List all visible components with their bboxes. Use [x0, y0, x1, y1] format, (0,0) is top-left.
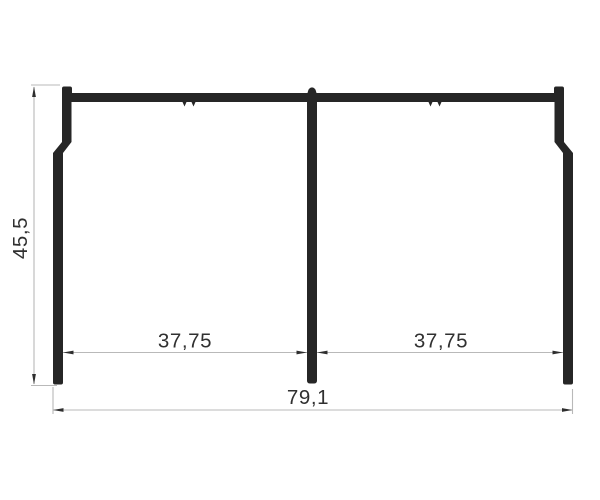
right-span-dimension-label: 37,75: [414, 330, 468, 353]
drawing-background: [0, 0, 600, 500]
total-width-dimension-label: 79,1: [287, 386, 329, 409]
drawing-page: 45,5 37,75 37,75 79,1: [0, 0, 600, 500]
left-span-dimension-label: 37,75: [158, 330, 212, 353]
height-dimension-label: 45,5: [9, 217, 32, 259]
technical-drawing-canvas: 45,5 37,75 37,75 79,1: [0, 0, 600, 500]
